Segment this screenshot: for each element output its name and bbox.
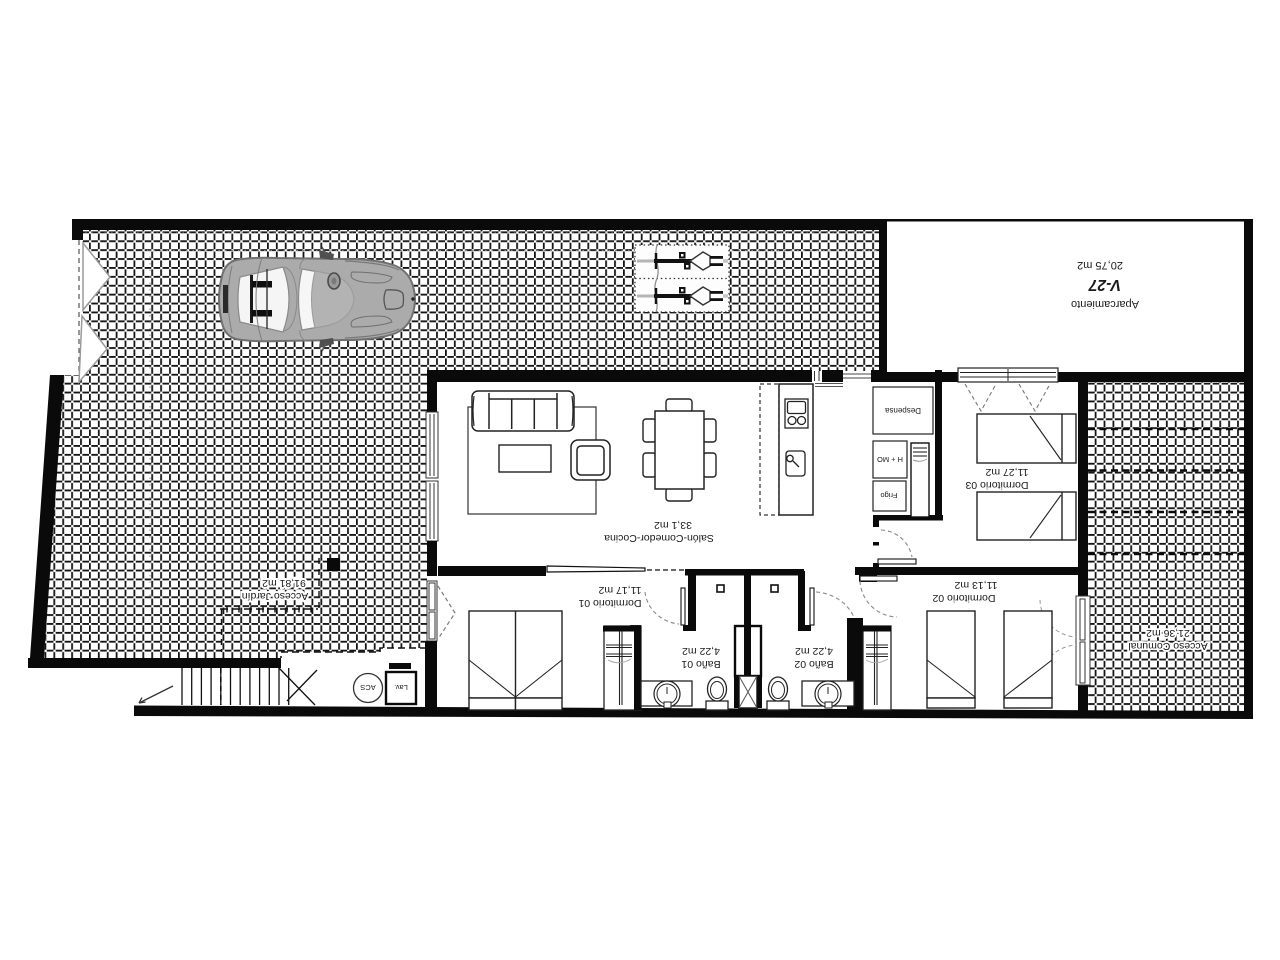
svg-text:Lav.: Lav.	[394, 683, 408, 692]
svg-text:H + MO: H + MO	[877, 455, 903, 464]
svg-text:4,22 m2: 4,22 m2	[682, 645, 720, 657]
svg-text:33,1 m2: 33,1 m2	[654, 519, 692, 531]
svg-text:11,27 m2: 11,27 m2	[985, 466, 1028, 478]
svg-text:11,17 m2: 11,17 m2	[598, 584, 641, 596]
svg-text:21,36 m2: 21,36 m2	[1146, 627, 1190, 639]
svg-text:V-27: V-27	[1088, 276, 1122, 293]
svg-text:Acceso Comunal: Acceso Comunal	[1128, 640, 1207, 652]
svg-text:Baño 02: Baño 02	[794, 658, 833, 670]
svg-text:20,75 m2: 20,75 m2	[1077, 259, 1123, 271]
svg-text:Dormitorio 02: Dormitorio 02	[932, 592, 995, 604]
svg-text:ACS: ACS	[360, 683, 375, 692]
svg-text:Frigo: Frigo	[880, 491, 897, 500]
svg-text:Acceso Jardín: Acceso Jardín	[242, 590, 309, 602]
svg-text:Despensa: Despensa	[884, 406, 921, 415]
svg-text:11,13 m2: 11,13 m2	[954, 579, 997, 591]
svg-text:91,81 m2: 91,81 m2	[262, 577, 306, 589]
svg-text:Dormitorio 03: Dormitorio 03	[965, 479, 1028, 491]
svg-text:Salón-Comedor-Cocina: Salón-Comedor-Cocina	[604, 532, 714, 544]
svg-text:Aparcamiento: Aparcamiento	[1071, 298, 1139, 310]
svg-text:4,22 m2: 4,22 m2	[795, 645, 833, 657]
svg-text:Dormitorio 01: Dormitorio 01	[578, 597, 641, 609]
svg-text:Baño 01: Baño 01	[681, 658, 720, 670]
